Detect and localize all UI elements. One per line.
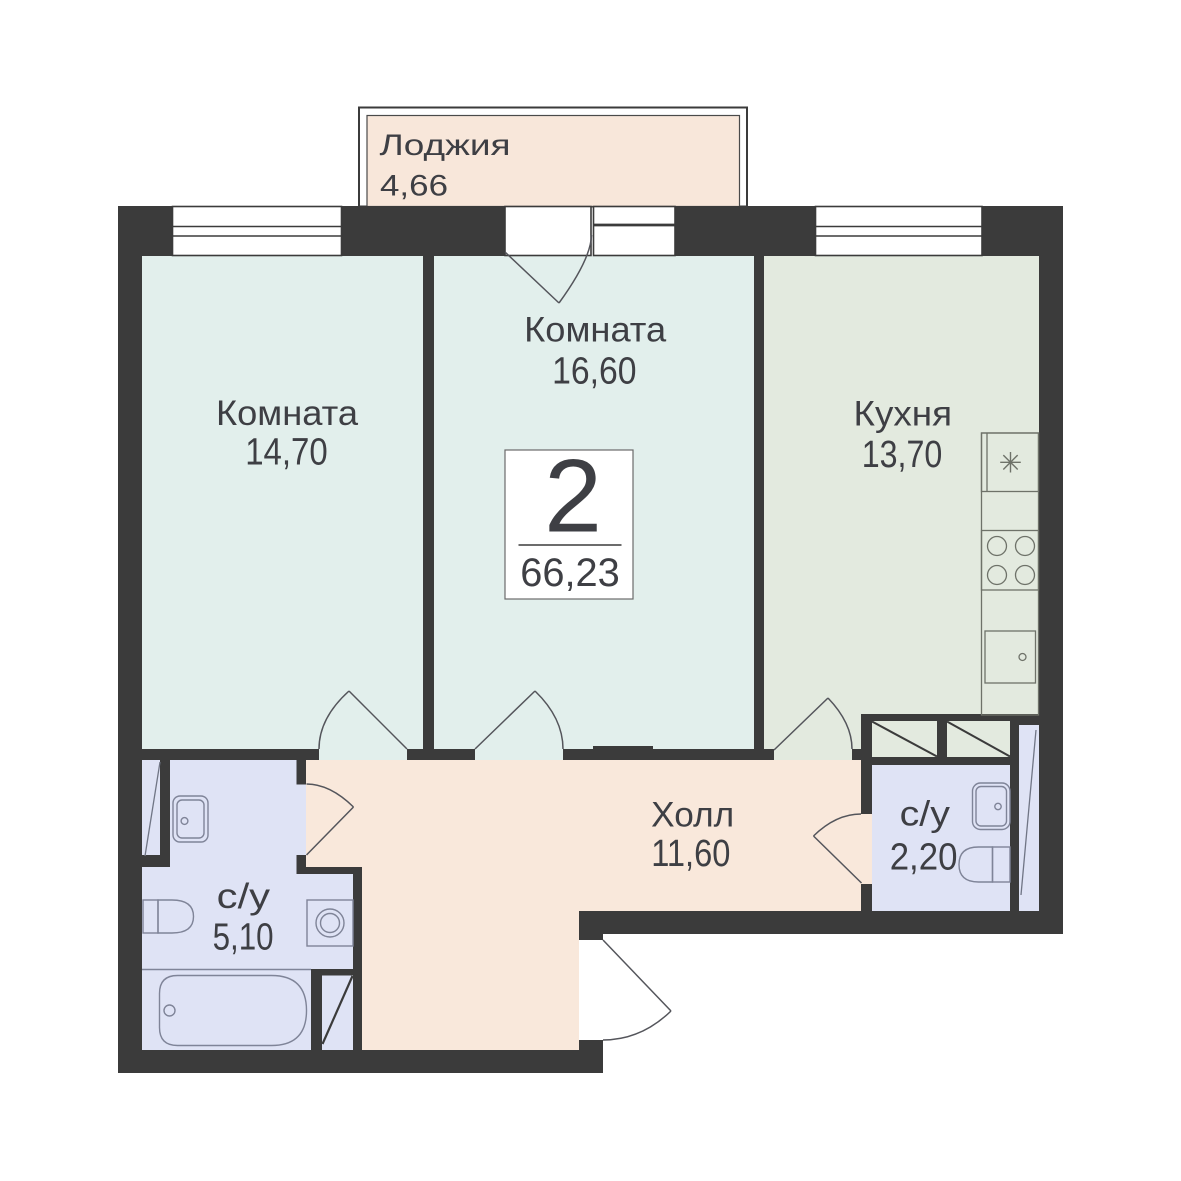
svg-text:13,70: 13,70 (862, 434, 943, 476)
svg-text:Комната: Комната (524, 311, 667, 350)
svg-text:Холл: Холл (651, 796, 734, 835)
svg-text:2: 2 (544, 439, 602, 555)
svg-text:11,60: 11,60 (651, 833, 730, 875)
svg-text:5,10: 5,10 (213, 917, 274, 959)
svg-text:с/у: с/у (900, 795, 951, 834)
svg-text:16,60: 16,60 (552, 351, 636, 393)
svg-text:4,66: 4,66 (380, 170, 448, 203)
svg-text:Лоджия: Лоджия (380, 129, 511, 162)
svg-text:14,70: 14,70 (245, 432, 328, 474)
svg-text:2,20: 2,20 (890, 837, 958, 879)
svg-text:Комната: Комната (216, 394, 359, 433)
svg-text:Кухня: Кухня (854, 395, 953, 434)
svg-text:с/у: с/у (217, 877, 271, 916)
svg-text:66,23: 66,23 (520, 551, 620, 595)
